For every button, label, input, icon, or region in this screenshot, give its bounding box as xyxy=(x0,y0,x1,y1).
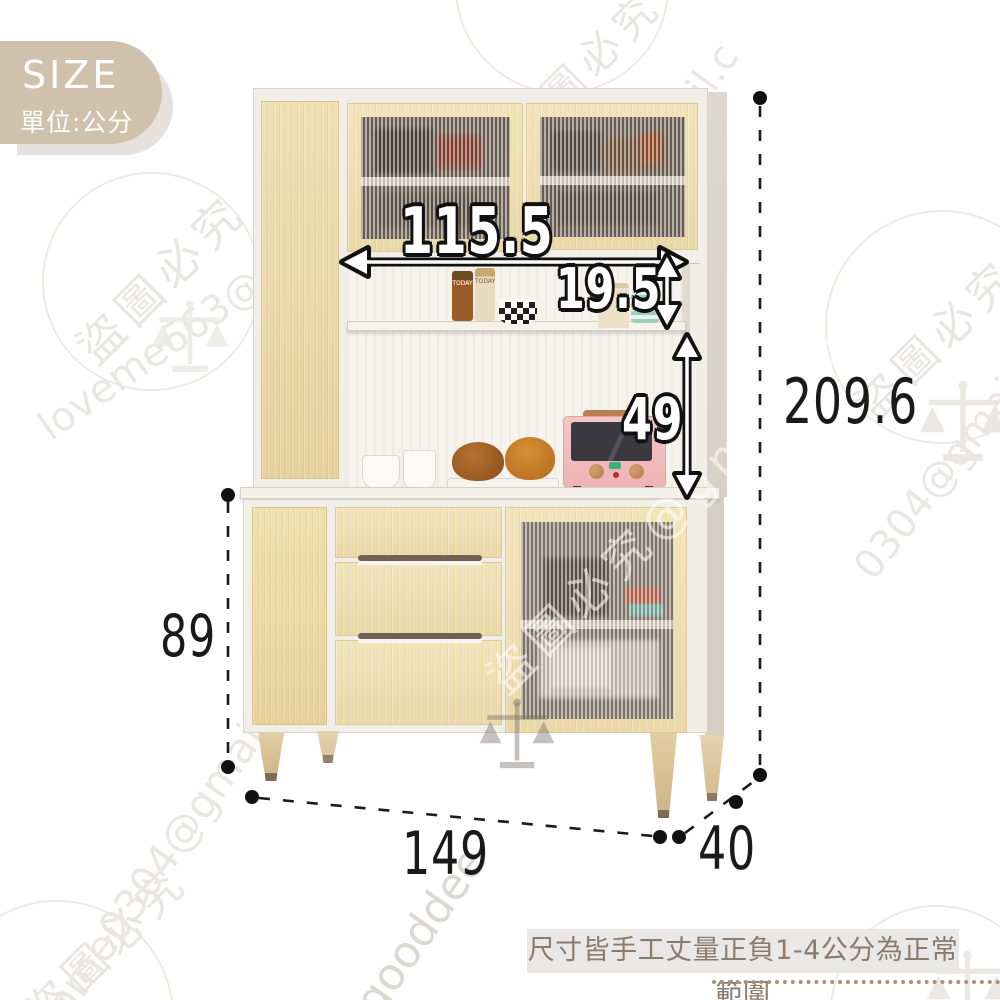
hutch-left-door xyxy=(261,101,339,479)
size-badge-title: SIZE xyxy=(22,53,119,97)
toaster-knob xyxy=(589,464,604,479)
dotted-rule xyxy=(712,980,1000,984)
toaster-knob xyxy=(629,464,644,479)
measurement-disclaimer: 尺寸皆手工丈量正負1-4公分為正常範圍 xyxy=(527,929,959,973)
bread-loaf xyxy=(452,442,504,481)
drawer xyxy=(335,562,502,636)
dim-label-open-height: 49 xyxy=(622,390,705,448)
dim-label-total-width: 149 xyxy=(402,824,520,884)
white-cup xyxy=(403,450,436,489)
product-dimension-diagram: 盜圖必究 loveme663@gmail 盜圖必究 663@gmail.c 盜圖… xyxy=(0,0,1000,1000)
drawer-pull-lip xyxy=(358,561,482,565)
lower-left-door xyxy=(252,507,327,725)
white-cup xyxy=(362,455,400,489)
coffee-jar-cream: TODAY xyxy=(475,268,495,321)
dim-label-total-height: 209.6 xyxy=(783,371,966,433)
cabinet-leg xyxy=(650,733,677,818)
drawer xyxy=(335,507,502,558)
dim-label-depth: 40 xyxy=(698,819,776,879)
bread-croissant xyxy=(505,437,555,480)
toaster-indicator xyxy=(613,472,619,478)
dim-label-shelf-height: 19.5 xyxy=(556,262,698,318)
scales-icon xyxy=(478,698,556,776)
cabinet-leg xyxy=(700,735,724,801)
checkered-mug xyxy=(499,299,537,324)
size-badge: SIZE 單位:公分 xyxy=(0,41,162,144)
size-badge-unit: 單位:公分 xyxy=(20,103,133,139)
cabinet-leg xyxy=(317,731,339,763)
coffee-jar-brown: TODAY xyxy=(452,271,473,321)
drawer-pull-lip xyxy=(358,639,482,643)
dim-label-inner-width: 115.5 xyxy=(400,200,607,264)
toaster-label xyxy=(609,462,621,469)
dim-label-lower-height: 89 xyxy=(160,607,236,665)
scales-icon xyxy=(150,300,230,380)
